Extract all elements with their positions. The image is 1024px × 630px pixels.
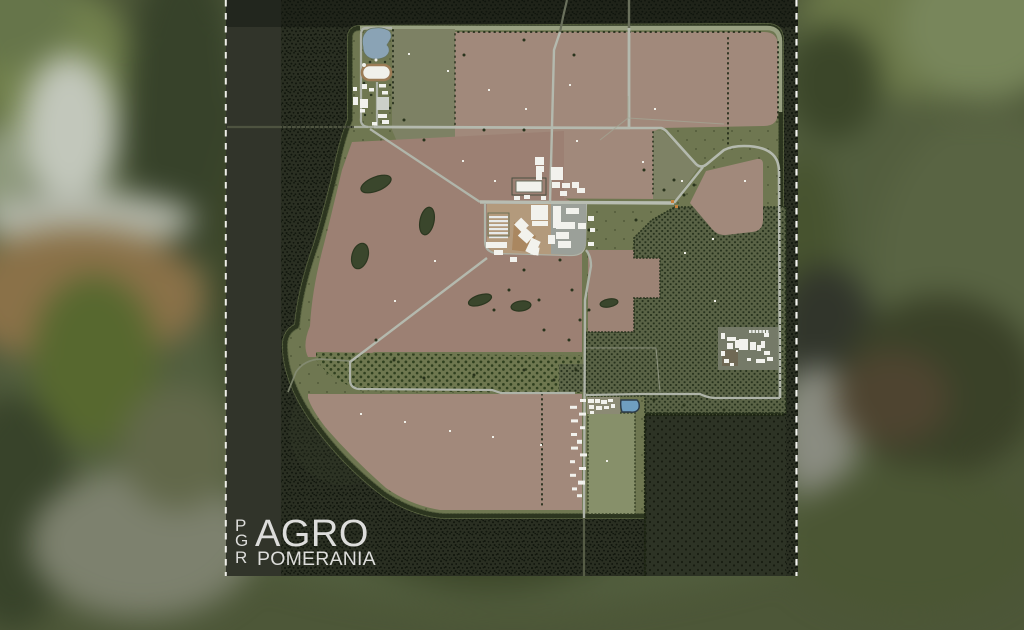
svg-text:POMERANIA: POMERANIA <box>257 548 376 570</box>
svg-text:R: R <box>235 548 247 567</box>
